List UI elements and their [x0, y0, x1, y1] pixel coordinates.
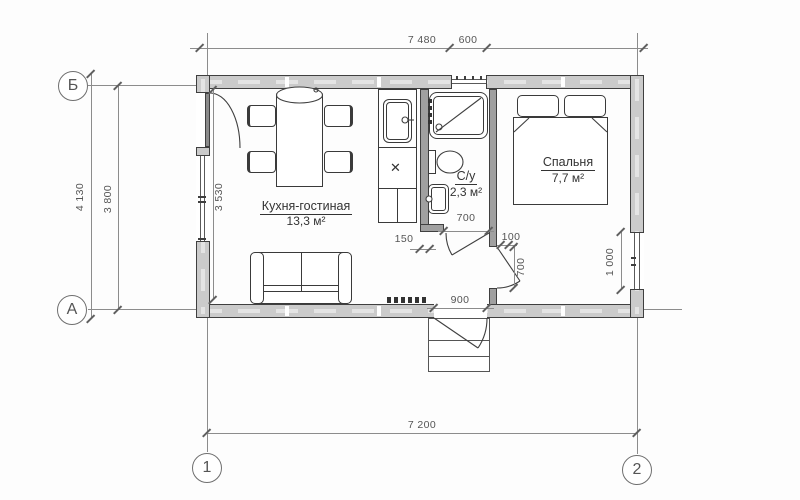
shower-diagonal	[436, 98, 481, 132]
dim-line-counter-offset	[410, 249, 436, 250]
dim-line-right-window	[621, 232, 622, 290]
entrance-door-leaf	[434, 318, 478, 348]
axis-marker-2: 2	[622, 455, 652, 485]
bath-door-arc	[446, 233, 452, 255]
bed-fold-left	[514, 118, 529, 132]
dim-left-inner: 3 530	[213, 175, 225, 219]
bed-fold-right	[592, 118, 607, 132]
room-label-bathroom: С/у	[441, 169, 491, 185]
room-label-kitchen: Кухня-гостиная	[246, 199, 366, 215]
axis-marker-b: Б	[58, 71, 88, 101]
room-label-bedroom: Спальня	[520, 155, 616, 171]
bath-door-leaf	[452, 233, 489, 255]
room-area-bathroom: 2,3 м²	[436, 185, 496, 199]
dim-left-axes: 3 800	[102, 177, 114, 221]
dim-left-outer: 4 130	[74, 175, 86, 219]
table-rounded-end	[277, 87, 323, 103]
dim-bath-door: 700	[448, 212, 484, 224]
dim-right-window: 1 000	[604, 240, 616, 284]
room-name-text: Спальня	[541, 155, 595, 171]
basin-tap	[426, 196, 432, 202]
dim-line-bottom	[207, 433, 637, 434]
axis-marker-1: 1	[192, 453, 222, 483]
dim-line-left-outer	[91, 74, 92, 319]
axis-marker-a: А	[57, 295, 87, 325]
dim-top-window: 600	[448, 34, 488, 46]
dim-entrance: 900	[442, 294, 478, 306]
room-name-text: С/у	[455, 169, 478, 185]
dim-bedroom-door: 700	[515, 249, 527, 285]
entrance-door-arc	[478, 318, 487, 348]
dim-counter-offset: 150	[386, 233, 422, 245]
floor-plan-canvas: ✕	[0, 0, 800, 500]
kitchen-tap	[402, 117, 408, 123]
room-area-bedroom: 7,7 м²	[520, 171, 616, 185]
room-area-kitchen: 13,3 м²	[246, 214, 366, 228]
dim-line-left-axes	[118, 86, 119, 310]
dim-bottom-axes: 7 200	[382, 419, 462, 431]
room-name-text: Кухня-гостиная	[260, 199, 352, 215]
dim-line-top	[190, 48, 648, 49]
left-door-arc	[210, 93, 240, 148]
